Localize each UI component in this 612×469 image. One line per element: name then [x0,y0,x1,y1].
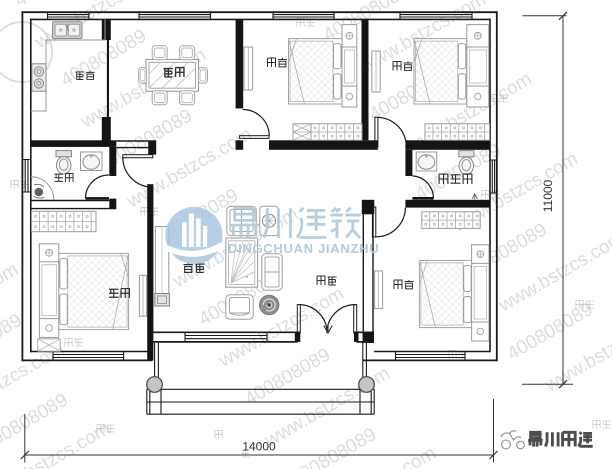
svg-text:DINGCHUAN JIANZHU: DINGCHUAN JIANZHU [228,241,379,256]
svg-text:14000: 14000 [242,440,276,454]
svg-text:11000: 11000 [541,179,555,212]
